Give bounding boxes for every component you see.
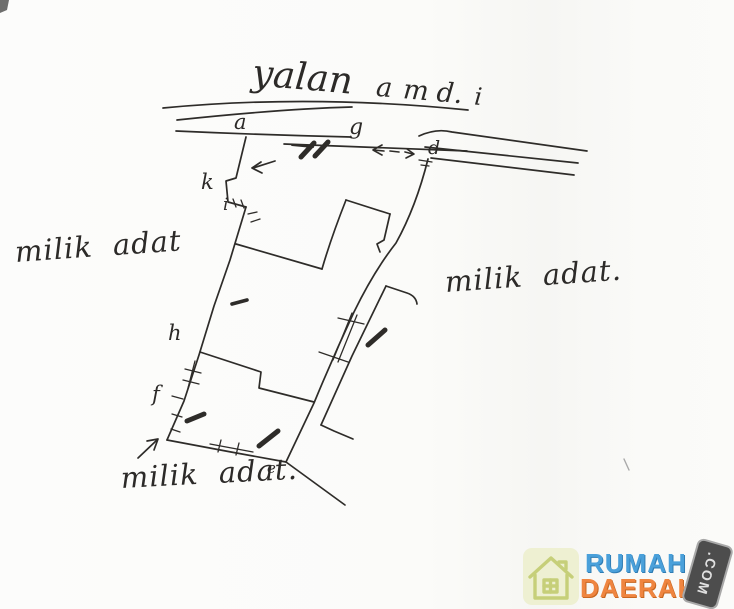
road-line — [177, 107, 352, 120]
street-word: a — [375, 74, 393, 102]
bold-slash — [259, 431, 278, 446]
interior-line-upper — [236, 244, 322, 269]
point-label-e: e — [267, 461, 276, 476]
hatch-tick — [419, 160, 432, 162]
point-label-a: a — [234, 112, 247, 133]
inner-structure — [200, 200, 390, 402]
watermark-com-text: .COM — [694, 550, 722, 597]
point-label-f: f — [152, 384, 160, 405]
interior-line-lower — [200, 352, 314, 402]
bold-ink-marks — [187, 142, 385, 446]
strip-top — [386, 286, 417, 304]
strip-foot — [321, 425, 353, 439]
road-line — [419, 131, 587, 151]
scanned-sketch-page: yalan a m d. i milik adat milik adat. mi… — [0, 0, 734, 609]
boundary-top-left-jog — [226, 137, 246, 207]
watermark-brand-daerah: DAERAH — [580, 573, 697, 604]
point-label-h: h — [168, 323, 182, 344]
hatch-tick — [248, 212, 257, 214]
point-label-i: i — [223, 197, 228, 214]
hatch-tick — [172, 396, 183, 399]
point-label-g: g — [349, 117, 363, 139]
bold-slash — [315, 142, 328, 156]
boundary-right-edge — [286, 159, 428, 462]
inner-building-left — [322, 200, 346, 269]
bold-slash — [187, 414, 204, 421]
inner-building-top — [346, 200, 390, 214]
hatch-tick — [319, 352, 348, 362]
street-word: d. — [436, 79, 464, 108]
watermark-house-tile — [523, 548, 579, 605]
survey-tick-symbols — [171, 160, 432, 455]
street-word: yalan — [251, 54, 355, 100]
scan-corner-smudge — [0, 0, 9, 13]
hatch-line — [188, 361, 195, 388]
inner-building-right — [377, 214, 390, 252]
point-label-d: d — [428, 139, 440, 158]
annotation-arrows — [138, 161, 275, 458]
dashed-arrow — [373, 145, 414, 158]
street-word: m — [402, 76, 430, 105]
hatch-tick — [171, 429, 180, 432]
house-icon — [523, 548, 579, 605]
bold-slash — [368, 330, 385, 345]
hatch-line — [210, 444, 253, 452]
right-strip-shape — [321, 286, 417, 439]
scan-speck — [624, 459, 629, 470]
point-label-k: k — [201, 172, 214, 193]
road-line — [176, 131, 351, 137]
bold-dash — [232, 300, 247, 304]
road-lines-right — [419, 131, 587, 175]
hatch-tick — [251, 219, 260, 222]
hatch-tick — [421, 165, 429, 166]
